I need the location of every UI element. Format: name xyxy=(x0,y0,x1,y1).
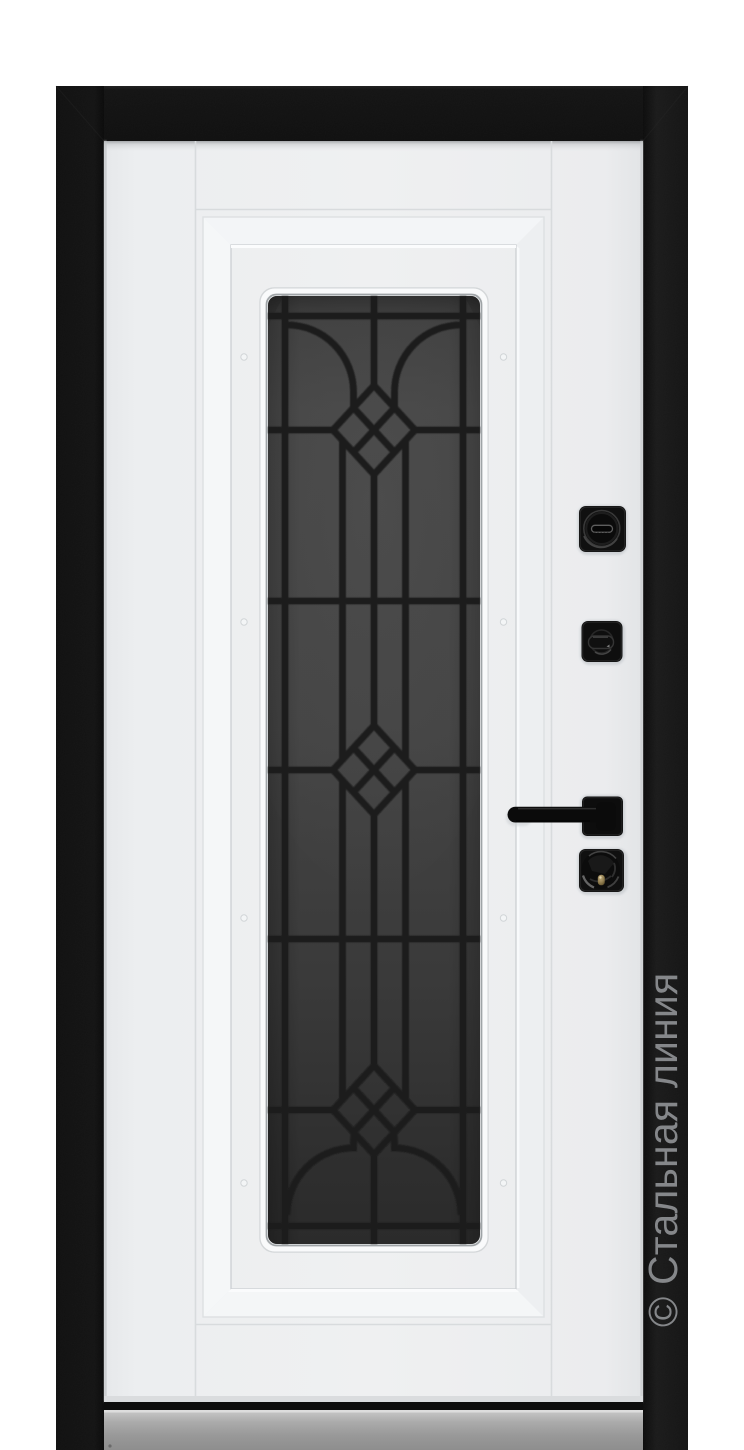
svg-text:© Стальная линия: © Стальная линия xyxy=(640,973,686,1327)
